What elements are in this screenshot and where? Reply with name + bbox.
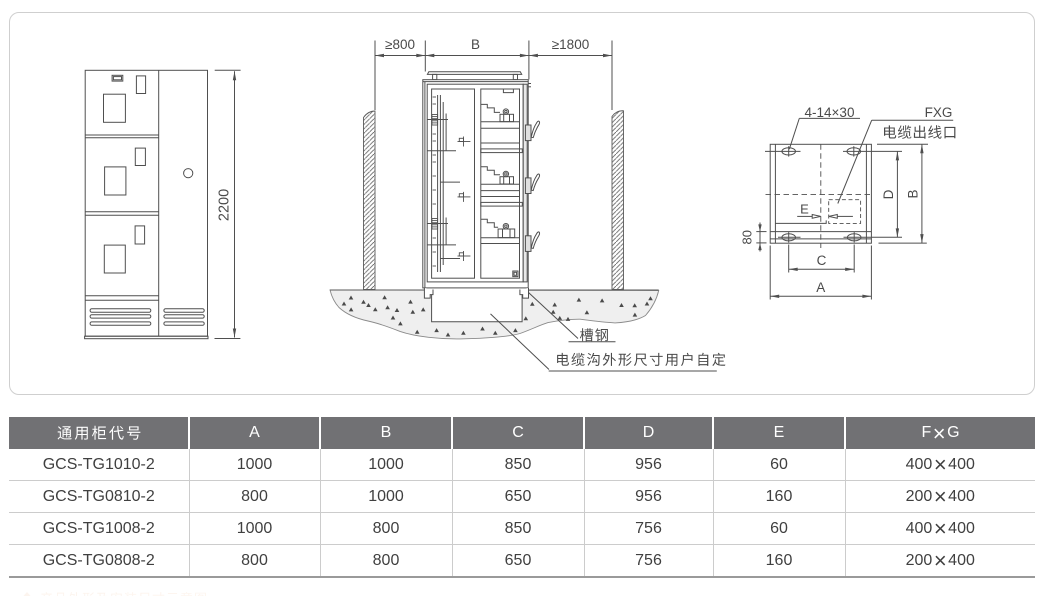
svg-text:B: B: [906, 189, 921, 198]
svg-text:B: B: [471, 37, 480, 52]
svg-text:D: D: [881, 189, 896, 199]
svg-text:E: E: [800, 202, 809, 217]
svg-text:≥1800: ≥1800: [552, 37, 589, 52]
svg-text:A: A: [816, 280, 825, 295]
svg-text:≥800: ≥800: [385, 37, 415, 52]
svg-text:2200: 2200: [217, 189, 233, 221]
svg-text:80: 80: [740, 230, 755, 244]
svg-text:FXG: FXG: [925, 105, 953, 120]
svg-text:C: C: [817, 253, 827, 268]
svg-text:4-14×30: 4-14×30: [805, 105, 855, 120]
